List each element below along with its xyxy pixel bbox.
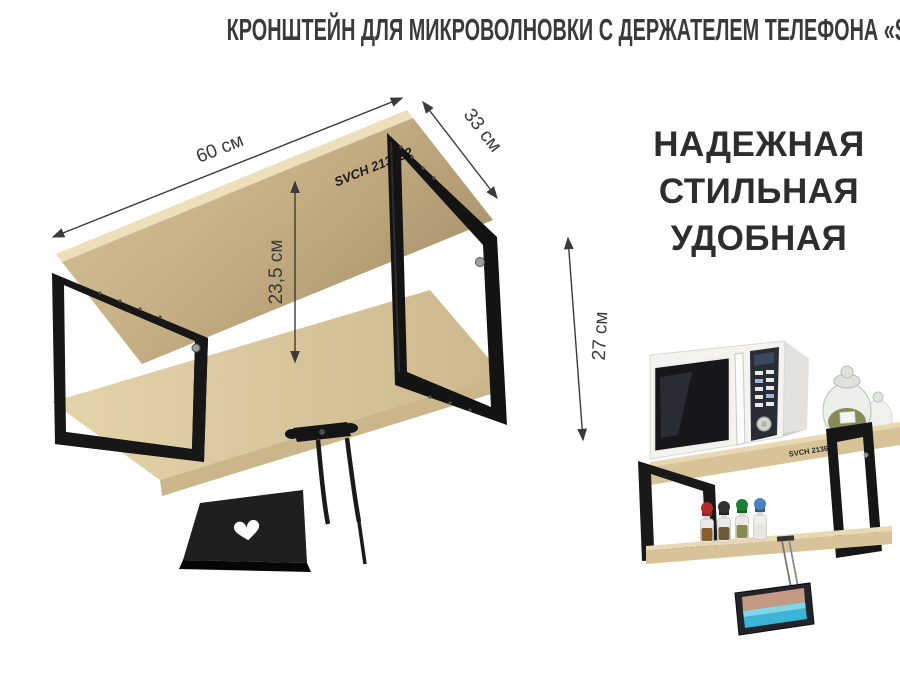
dimension-label-60: 60 см (193, 130, 246, 168)
product-card: КРОНШТЕЙН ДЛЯ МИКРОВОЛНОВКИ С ДЕРЖАТЕЛЕМ… (0, 0, 900, 675)
slogan-line-2: СТИЛЬНАЯ (616, 168, 900, 215)
panel-button (755, 403, 763, 407)
slogan-line-1: НАДЕЖНАЯ (616, 121, 900, 168)
panel-dial-center (761, 421, 767, 427)
bracket-hole (428, 395, 431, 398)
holder-mount-wing (342, 423, 358, 433)
panel-button (755, 387, 763, 391)
microwave-side (783, 341, 809, 437)
dimension-label-27: 27 см (589, 311, 613, 361)
panel-button (766, 402, 774, 406)
bracket-hole (448, 401, 451, 404)
slogan-line-3: УДОБНАЯ (616, 215, 900, 262)
jar-lid-knob (841, 366, 853, 378)
page-title: КРОНШТЕЙН ДЛЯ МИКРОВОЛНОВКИ С ДЕРЖАТЕЛЕМ… (0, 12, 900, 48)
panel-button (755, 379, 763, 383)
bracket-hole (158, 315, 161, 318)
panel-button (755, 395, 763, 399)
holder-rod-lower (359, 522, 365, 564)
bracket-hole (421, 166, 424, 169)
bracket-hole (138, 307, 141, 310)
photo-bottom-shelf (646, 526, 892, 564)
panel-button (755, 371, 763, 375)
spice-bottle (718, 501, 731, 542)
bracket-hole (432, 176, 435, 179)
panel-button (766, 370, 774, 374)
holder-mount-wing (285, 429, 299, 439)
bracket-hole (98, 291, 101, 294)
jar-knob (873, 392, 883, 402)
panel-button (766, 386, 774, 390)
bracket-screw (192, 344, 200, 352)
page-title-text: КРОНШТЕЙН ДЛЯ МИКРОВОЛНОВКИ С ДЕРЖАТЕЛЕМ… (227, 12, 900, 48)
bracket-hole (468, 408, 471, 411)
spice-bottle (736, 499, 749, 540)
product-diagram: SVCH 213692 60 см (10, 72, 630, 647)
panel-button (766, 378, 774, 382)
bracket-hole (399, 145, 402, 148)
spice-bottles (701, 498, 767, 543)
spice-bottle (701, 502, 714, 543)
bracket-hole (410, 155, 413, 158)
holder-rod (318, 440, 328, 524)
microwave-control-panel (750, 347, 779, 441)
holder-bolt (319, 429, 325, 435)
microwave-handle (735, 353, 745, 445)
bracket-screw (476, 258, 485, 267)
panel-button (766, 394, 774, 398)
jar-label (840, 411, 856, 423)
holder-rod (347, 438, 359, 522)
spice-bottle (754, 498, 767, 539)
dimension-label-235: 23,5 см (266, 240, 287, 305)
photo-bracket-screw (864, 453, 869, 458)
usage-photo: SVCH 213692 (620, 325, 900, 670)
slogan: НАДЕЖНАЯ СТИЛЬНАЯ УДОБНАЯ (616, 121, 900, 262)
dimension-total-height: 27 см (568, 238, 612, 440)
dimension-line-27 (568, 238, 583, 440)
dimension-label-33: 33 см (459, 105, 506, 157)
bracket-hole (118, 299, 121, 302)
